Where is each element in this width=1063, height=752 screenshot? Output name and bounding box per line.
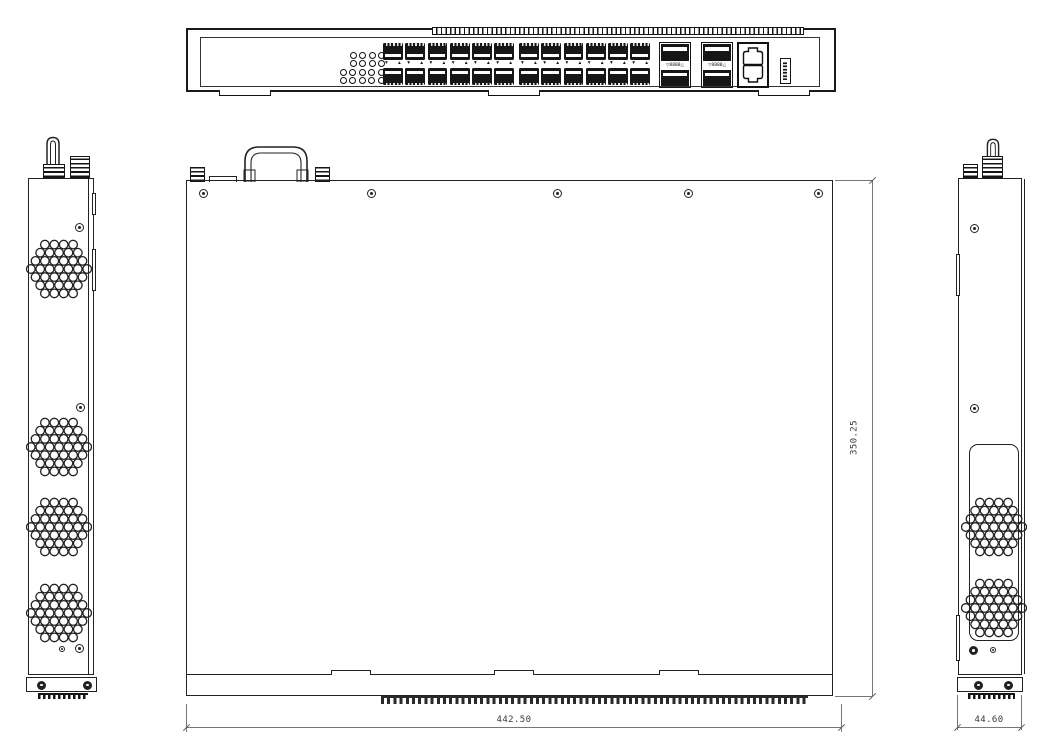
led-hole: [369, 60, 376, 67]
sfp-cage-upper: [630, 43, 650, 60]
sfp-cage-upper: [405, 43, 425, 60]
led-hole: [340, 69, 347, 76]
right-side-view: 44.60: [955, 135, 1028, 735]
led-hole: [350, 60, 357, 67]
port-triangle-markers: ▾▴: [541, 60, 561, 68]
dimension-width-label: 442.50: [479, 715, 549, 726]
latch-tab: [494, 670, 534, 675]
thumbscrew-icon: [982, 156, 1003, 178]
top-view: 442.50 350.25: [186, 142, 886, 742]
sfp-cage-column: ▾▴: [405, 43, 425, 85]
sfp-cage-column: ▾▴: [428, 43, 448, 85]
top-cover: [186, 180, 833, 696]
led-hole: [359, 52, 366, 59]
usb-port: [780, 58, 791, 84]
sfp-cage-upper: [494, 43, 514, 60]
latch-tab: [331, 670, 371, 675]
sfp-cage-column: ▾▴: [630, 43, 650, 85]
vent-cluster: [26, 236, 92, 302]
sfp-cage-column: ▾▴: [608, 43, 628, 85]
honeycomb-vent-icon: [26, 494, 92, 560]
sfp-cage-column: ▾▴: [450, 43, 470, 85]
foot-rail: [968, 693, 1015, 699]
screw-hole: [59, 646, 65, 652]
sfp-cage-lower: [383, 68, 403, 85]
screw-hole: [990, 647, 996, 653]
sfp-port-block-1: ▾▴▾▴▾▴▾▴▾▴▾▴: [383, 43, 514, 85]
dimension-line-width: [186, 727, 841, 728]
uplink-port-lower: [703, 70, 731, 87]
thumbscrew-icon: [70, 156, 90, 178]
sfp-cage-lower: [519, 68, 539, 85]
led-hole: [359, 69, 366, 76]
uplink-port-module-2: ▽8888△: [701, 42, 733, 88]
bracket-screw: [83, 681, 92, 690]
honeycomb-vent-icon: [26, 236, 92, 302]
sfp-cage-lower: [472, 68, 492, 85]
led-indicator-grid: [340, 52, 385, 86]
port-triangle-markers: ▾▴: [405, 60, 425, 68]
sfp-port-block-2: ▾▴▾▴▾▴▾▴▾▴▾▴: [519, 43, 650, 85]
sfp-cage-column: ▾▴: [586, 43, 606, 85]
vent-cluster: [961, 494, 1027, 560]
dimension-line-side: [957, 727, 1021, 728]
port-triangle-markers: ▾▴: [564, 60, 584, 68]
latch-tab: [92, 249, 96, 291]
port-triangle-markers: ▾▴: [383, 60, 403, 68]
honeycomb-vent-icon: [961, 494, 1027, 560]
bracket-screw: [974, 681, 983, 690]
sfp-cage-upper: [564, 43, 584, 60]
sfp-cage-column: ▾▴: [541, 43, 561, 85]
cover-screw: [199, 189, 208, 198]
vent-cluster: [961, 575, 1027, 641]
latch-tab: [956, 615, 960, 661]
sfp-cage-upper: [586, 43, 606, 60]
port-triangle-markers: ▾▴: [630, 60, 650, 68]
sfp-cage-lower: [586, 68, 606, 85]
led-hole: [350, 52, 357, 59]
sfp-cage-column: ▾▴: [564, 43, 584, 85]
thumbscrew-icon: [963, 164, 978, 178]
sfp-cage-upper: [450, 43, 470, 60]
sfp-cage-upper: [428, 43, 448, 60]
honeycomb-vent-icon: [26, 414, 92, 480]
sfp-cage-lower: [428, 68, 448, 85]
port-number-marking: ▽8888△: [660, 62, 690, 69]
handle-loop-icon: [43, 135, 63, 165]
port-triangle-markers: ▾▴: [608, 60, 628, 68]
vent-cluster: [26, 580, 92, 646]
sfp-cage-lower: [608, 68, 628, 85]
top-vent-slots: [432, 27, 804, 35]
sfp-cage-lower: [630, 68, 650, 85]
latch-tab: [956, 254, 960, 296]
port-triangle-markers: ▾▴: [472, 60, 492, 68]
sfp-cage-lower: [564, 68, 584, 85]
rj45-jack-icon: [739, 44, 767, 86]
led-hole: [340, 77, 347, 84]
port-triangle-markers: ▾▴: [519, 60, 539, 68]
uplink-port-upper: [661, 44, 689, 61]
sfp-cage-upper: [519, 43, 539, 60]
switch-mechanical-drawing: ▾▴▾▴▾▴▾▴▾▴▾▴ ▾▴▾▴▾▴▾▴▾▴▾▴ ▽8888△ ▽8888△: [0, 0, 1063, 752]
extension-line: [835, 180, 872, 181]
front-panel-vents-top: [381, 696, 808, 704]
cover-screw: [814, 189, 823, 198]
sfp-cage-lower: [494, 68, 514, 85]
left-chassis-body: [28, 178, 94, 675]
screw-hole: [969, 646, 978, 655]
chassis-foot: [219, 90, 271, 96]
dimension-side-label: 44.60: [962, 715, 1016, 726]
led-hole: [359, 60, 366, 67]
chassis-foot: [488, 90, 540, 96]
rj45-stacked-ports: [737, 42, 769, 88]
screw-hole: [76, 403, 85, 412]
uplink-port-lower: [661, 70, 689, 87]
thumbscrew-icon: [43, 164, 65, 178]
cover-screw: [367, 189, 376, 198]
sfp-cage-lower: [405, 68, 425, 85]
bottom-bracket: [26, 677, 97, 692]
cover-screw: [553, 189, 562, 198]
sfp-cage-upper: [472, 43, 492, 60]
led-hole: [369, 52, 376, 59]
carry-handle-icon: [242, 142, 310, 182]
sfp-cage-lower: [541, 68, 561, 85]
screw-hole: [75, 644, 84, 653]
chassis-foot: [758, 90, 810, 96]
cover-screw: [684, 189, 693, 198]
honeycomb-vent-icon: [961, 575, 1027, 641]
front-view: ▾▴▾▴▾▴▾▴▾▴▾▴ ▾▴▾▴▾▴▾▴▾▴▾▴ ▽8888△ ▽8888△: [186, 28, 836, 92]
uplink-port-module-1: ▽8888△: [659, 42, 691, 88]
dimension-line-depth: [872, 180, 873, 696]
bracket-screw: [37, 681, 46, 690]
honeycomb-vent-icon: [26, 580, 92, 646]
led-hole: [349, 69, 356, 76]
sfp-cage-lower: [450, 68, 470, 85]
led-hole: [359, 77, 366, 84]
port-number-marking: ▽8888△: [702, 62, 732, 69]
port-triangle-markers: ▾▴: [450, 60, 470, 68]
port-triangle-markers: ▾▴: [428, 60, 448, 68]
sfp-cage-upper: [541, 43, 561, 60]
sfp-cage-column: ▾▴: [519, 43, 539, 85]
screw-hole: [970, 224, 979, 233]
sfp-cage-column: ▾▴: [472, 43, 492, 85]
vent-cluster: [26, 414, 92, 480]
vent-cluster: [26, 494, 92, 560]
screw-hole: [75, 223, 84, 232]
usb-contact-icon: [783, 62, 787, 80]
sfp-cage-column: ▾▴: [383, 43, 403, 85]
left-side-view: [26, 135, 99, 735]
dimension-depth-label: 350.25: [850, 413, 861, 463]
dimension-tick: [869, 693, 876, 700]
right-chassis-body: [958, 178, 1022, 675]
led-hole: [349, 77, 356, 84]
led-hole: [368, 69, 375, 76]
port-triangle-markers: ▾▴: [586, 60, 606, 68]
latch-tab: [659, 670, 699, 675]
bottom-bracket: [957, 677, 1023, 692]
port-triangle-markers: ▾▴: [494, 60, 514, 68]
uplink-port-upper: [703, 44, 731, 61]
extension-line: [835, 696, 872, 697]
sfp-cage-upper: [608, 43, 628, 60]
led-hole: [368, 77, 375, 84]
sfp-cage-column: ▾▴: [494, 43, 514, 85]
latch-tab: [92, 193, 96, 215]
bracket-screw: [1004, 681, 1013, 690]
screw-hole: [970, 404, 979, 413]
sfp-cage-upper: [383, 43, 403, 60]
foot-rail: [38, 693, 88, 699]
